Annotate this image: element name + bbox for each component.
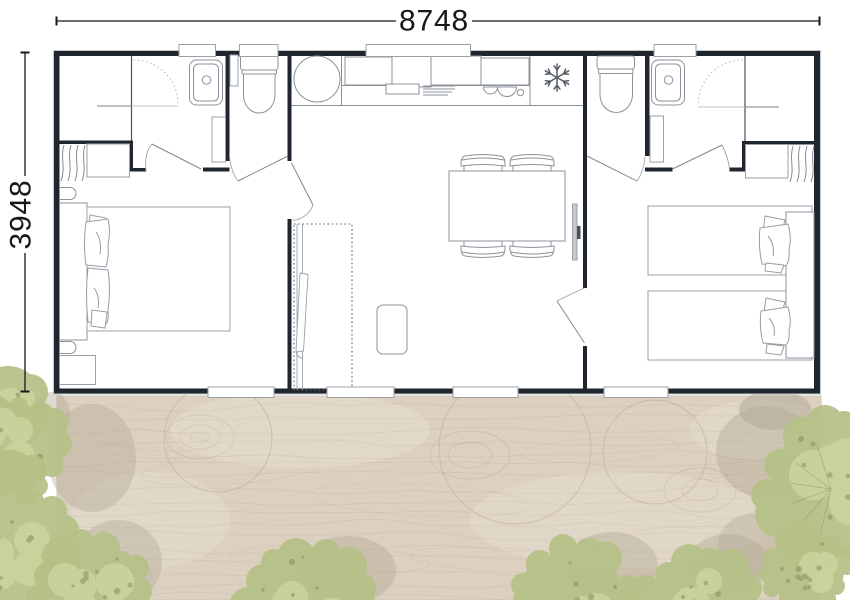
svg-text:3948: 3948	[5, 180, 38, 250]
svg-text:8748: 8748	[399, 5, 469, 38]
